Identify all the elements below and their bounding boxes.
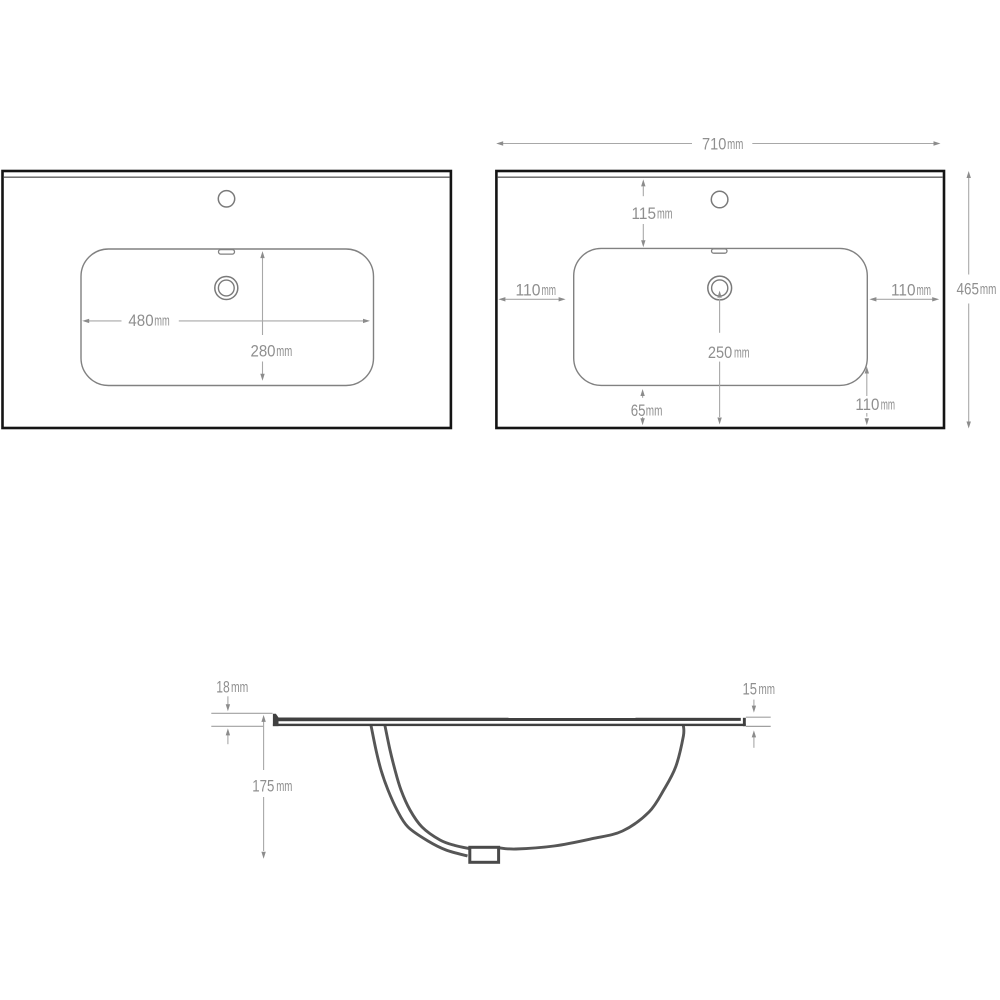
svg-text:mm: mm — [734, 345, 750, 362]
svg-text:mm: mm — [727, 136, 743, 153]
svg-text:mm: mm — [657, 206, 673, 223]
svg-text:250: 250 — [708, 344, 732, 362]
svg-text:465: 465 — [957, 280, 980, 298]
svg-text:mm: mm — [231, 679, 248, 696]
svg-text:115: 115 — [632, 205, 657, 223]
svg-text:110: 110 — [516, 282, 541, 300]
svg-text:mm: mm — [542, 282, 557, 299]
svg-text:mm: mm — [759, 681, 776, 698]
svg-text:mm: mm — [276, 343, 292, 360]
svg-text:110: 110 — [855, 396, 879, 414]
svg-text:280: 280 — [251, 343, 276, 361]
svg-text:mm: mm — [917, 282, 932, 299]
svg-text:mm: mm — [646, 403, 663, 420]
svg-text:480: 480 — [128, 312, 153, 330]
svg-text:175: 175 — [252, 778, 274, 796]
svg-text:110: 110 — [891, 282, 916, 300]
svg-text:mm: mm — [154, 313, 169, 330]
svg-text:65: 65 — [631, 402, 646, 420]
svg-text:710: 710 — [702, 135, 726, 153]
svg-text:mm: mm — [881, 397, 895, 414]
svg-text:mm: mm — [980, 281, 997, 298]
svg-text:mm: mm — [276, 778, 292, 795]
svg-text:18: 18 — [216, 679, 230, 697]
svg-text:15: 15 — [743, 680, 758, 698]
